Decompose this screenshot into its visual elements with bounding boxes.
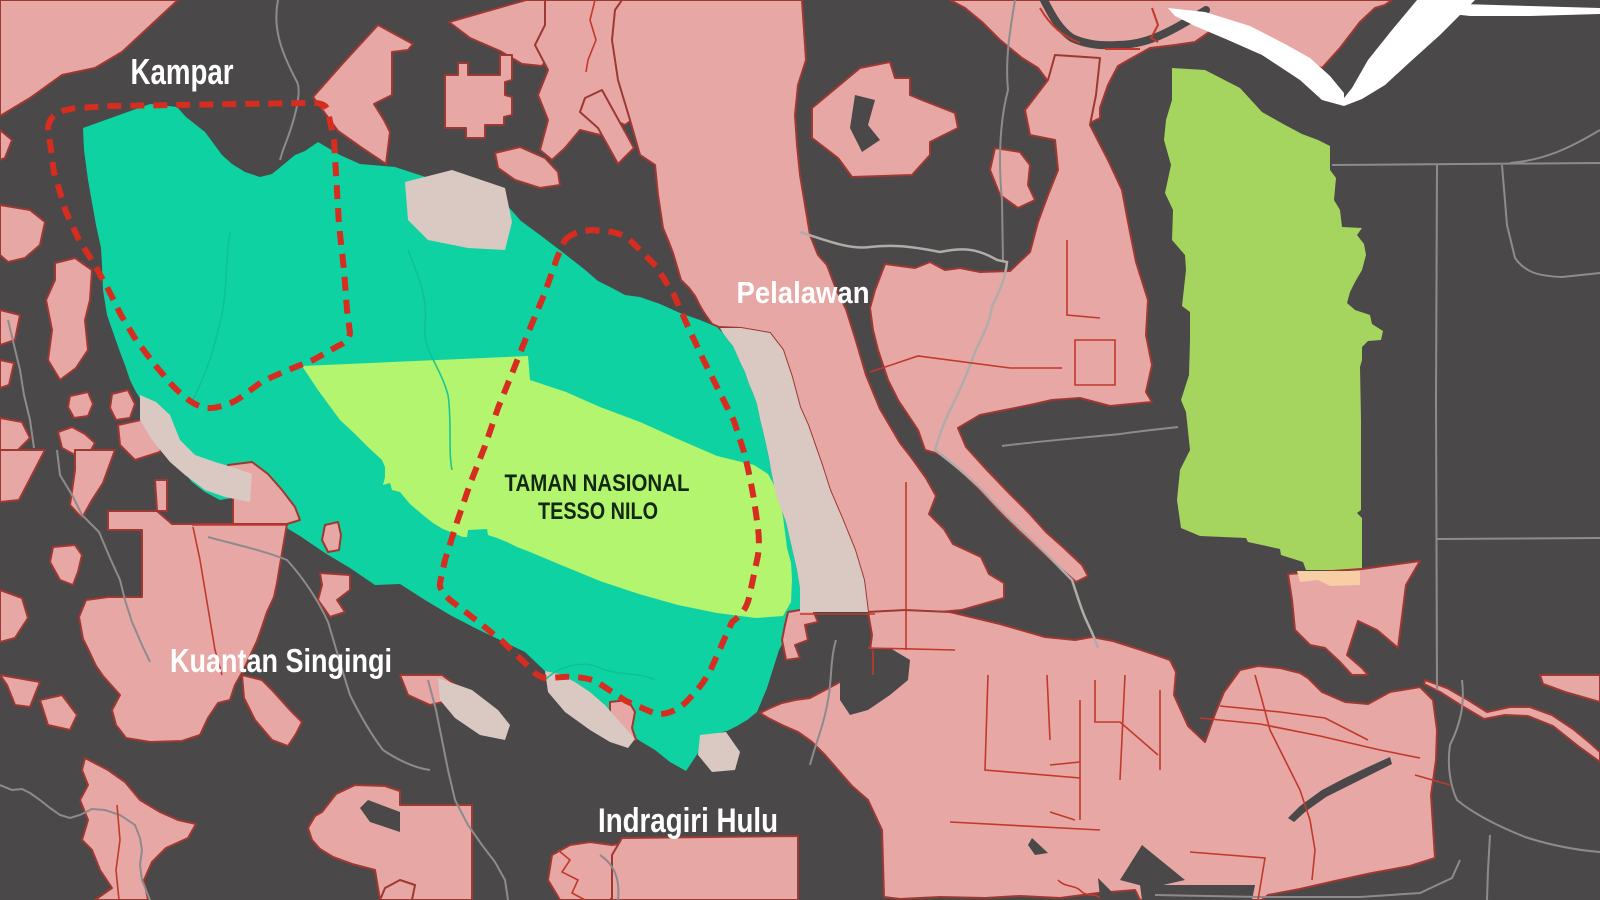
svg-text:Indragiri Hulu: Indragiri Hulu	[598, 802, 778, 840]
svg-text:Pelalawan: Pelalawan	[737, 275, 870, 310]
svg-text:Kuantan Singingi: Kuantan Singingi	[170, 642, 392, 679]
svg-text:Kampar: Kampar	[131, 51, 234, 92]
svg-text:TESSO NILO: TESSO NILO	[538, 498, 658, 525]
svg-text:TAMAN NASIONAL: TAMAN NASIONAL	[505, 470, 690, 497]
